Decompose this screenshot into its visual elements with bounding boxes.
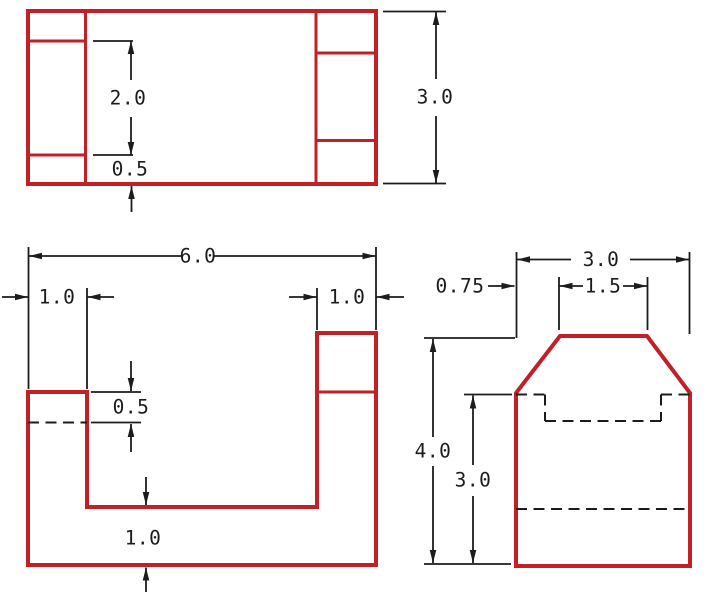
front-view-dimensions: 6.0 1.0 1.0 0.5 1.0 bbox=[2, 245, 404, 593]
side-view-outline bbox=[516, 336, 690, 566]
engineering-drawing-page: 2.0 0.5 3.0 6.0 1.0 1.0 bbox=[0, 0, 705, 594]
dim-label-front-base-height: 1.0 bbox=[125, 527, 162, 550]
dim-label-top-edge-offset: 0.5 bbox=[112, 158, 149, 181]
front-view-outline bbox=[28, 333, 376, 565]
dim-label-front-left-wall: 1.0 bbox=[39, 286, 76, 309]
side-view-hidden-lines bbox=[516, 395, 690, 510]
dim-label-front-step-depth: 0.5 bbox=[113, 396, 150, 419]
dim-label-top-total-depth: 3.0 bbox=[417, 86, 454, 109]
dim-label-top-inner-depth: 2.0 bbox=[110, 87, 147, 110]
top-view-dimensions: 2.0 0.5 3.0 bbox=[93, 12, 453, 213]
side-view-dimensions: 3.0 0.75 1.5 4.0 3.0 bbox=[415, 248, 690, 564]
dim-label-side-top-flat: 1.5 bbox=[585, 275, 622, 298]
dim-label-side-total-width: 3.0 bbox=[583, 248, 620, 271]
top-view-outline bbox=[28, 11, 376, 184]
dim-label-side-chamfer-width: 0.75 bbox=[436, 275, 485, 298]
front-view bbox=[28, 333, 376, 565]
dim-label-side-total-height: 4.0 bbox=[415, 440, 452, 463]
dim-label-front-right-wall: 1.0 bbox=[329, 286, 366, 309]
dim-label-front-total-width: 6.0 bbox=[180, 245, 217, 268]
side-view bbox=[516, 336, 690, 566]
dim-label-side-shoulder-height: 3.0 bbox=[455, 469, 492, 492]
engineering-drawing-canvas: 2.0 0.5 3.0 6.0 1.0 1.0 bbox=[0, 0, 705, 594]
top-view bbox=[28, 11, 376, 184]
